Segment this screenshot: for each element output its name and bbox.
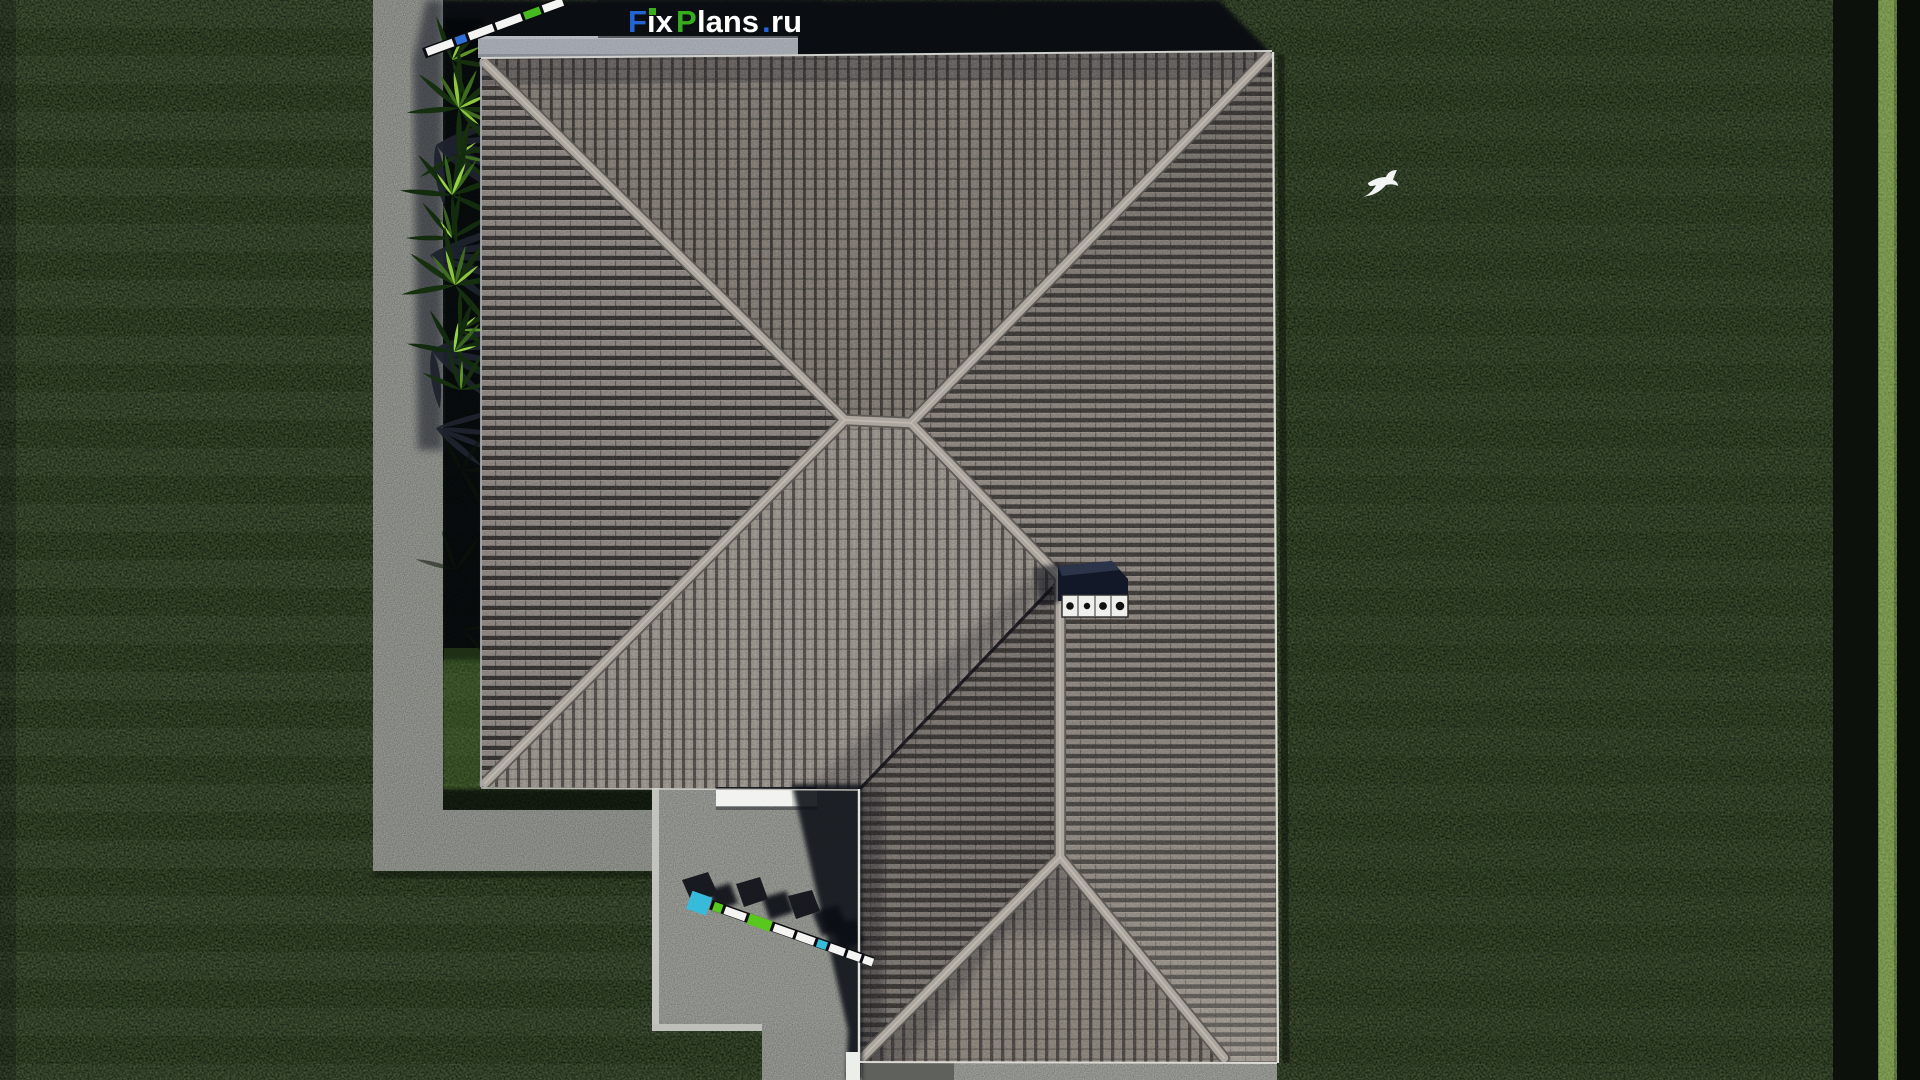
svg-text:lans: lans <box>697 4 759 39</box>
svg-text:F: F <box>628 4 647 39</box>
svg-text:P: P <box>676 4 697 39</box>
svg-text:.: . <box>762 4 771 39</box>
svg-text:ru: ru <box>771 4 802 39</box>
